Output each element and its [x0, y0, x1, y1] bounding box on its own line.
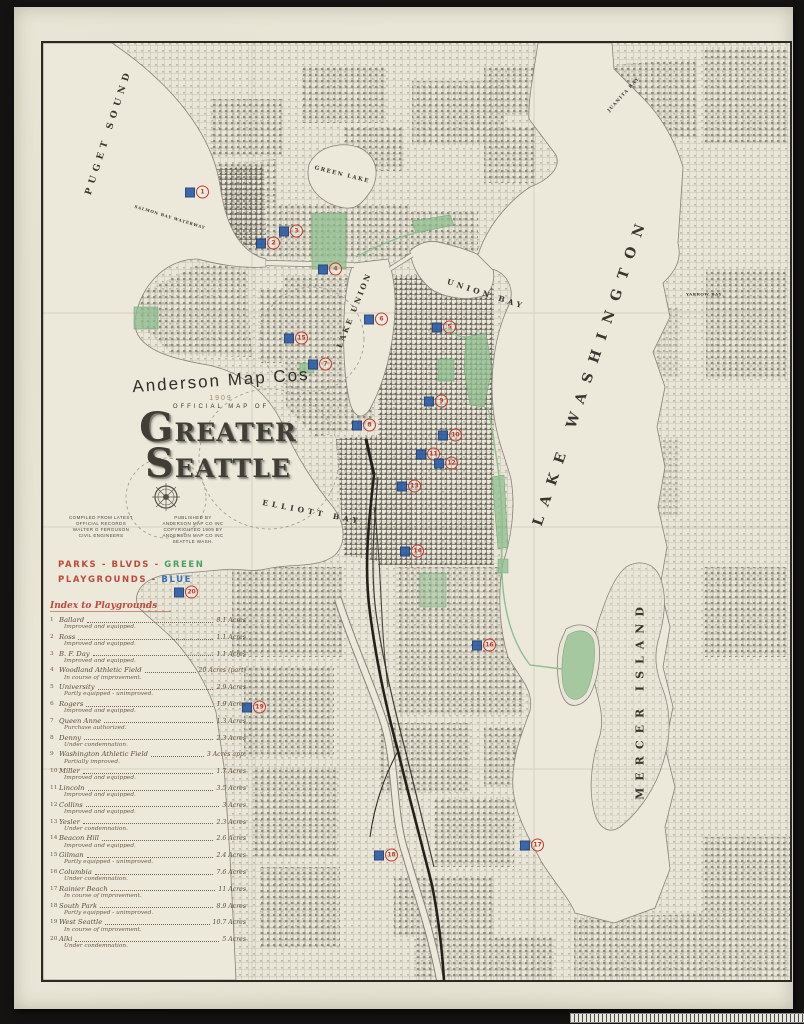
index-item: 14Beacon Hill2.6 AcresImproved and equip…: [50, 835, 246, 849]
credit-line: CIVIL ENGINEERS: [62, 533, 140, 539]
water-label: MERCER ISLAND: [634, 600, 647, 800]
index-item-name: B. F. Day: [59, 651, 90, 658]
playground-square-icon: [520, 840, 530, 850]
index-item-status: In course of improvement.: [64, 675, 246, 682]
playground-square-icon: [400, 546, 410, 556]
dotted-leader: [88, 789, 214, 791]
playground-number-badge: 16: [483, 639, 496, 652]
index-item-acres: 3 Acres: [222, 802, 246, 809]
index-item-status: In course of improvement.: [64, 927, 246, 934]
index-item-status: Improved and equipped.: [64, 708, 246, 715]
scanned-map-photo: PUGET SOUNDGREEN LAKELAKE UNIONUNION BAY…: [0, 0, 804, 1024]
index-item-name: West Seattle: [59, 919, 102, 926]
index-item: 8Denny2.3 AcresUnder condemnation.: [50, 735, 246, 749]
playground-square-icon: [374, 850, 384, 860]
playground-square-icon: [318, 264, 328, 274]
index-item-number: 10: [50, 768, 59, 775]
index-item: 5University2.9 AcresPartly equipped - un…: [50, 684, 246, 698]
index-item-number: 11: [50, 785, 59, 792]
playground-square-icon: [364, 314, 374, 324]
index-item-acres: 1.3 Acres: [216, 718, 246, 725]
playground-number-badge: 15: [295, 332, 308, 345]
index-item-name: Columbia: [59, 869, 92, 876]
compass-rose: [152, 483, 180, 511]
index-item-status: Partly equipped - unimproved.: [64, 691, 246, 698]
dotted-leader: [105, 923, 209, 925]
index-item-number: 18: [50, 903, 59, 910]
index-item-acres: 10.7 Acres: [213, 919, 246, 926]
playground-marker: 10: [438, 429, 462, 442]
index-item: 13Yesler2.3 AcresUnder condemnation.: [50, 819, 246, 833]
playground-square-icon: [185, 187, 195, 197]
index-item-acres: 3.5 Acres: [216, 785, 246, 792]
playground-square-icon: [424, 396, 434, 406]
playground-marker: 18: [374, 849, 398, 862]
index-item-acres: 1.1 Acres: [216, 651, 246, 658]
playground-number-badge: 4: [329, 263, 342, 276]
index-item: 7Queen Anne1.3 AcresPurchase authorized.: [50, 718, 246, 732]
index-item-number: 16: [50, 869, 59, 876]
playground-marker: 15: [284, 332, 308, 345]
index-item-number: 5: [50, 684, 59, 691]
legend-parks-label: PARKS - BLVDS -: [58, 560, 160, 570]
dotted-leader: [86, 805, 220, 807]
title-initial-s: S: [145, 440, 175, 487]
playground-marker: 6: [364, 313, 388, 326]
playground-marker: 13: [397, 480, 421, 493]
index-item-number: 14: [50, 835, 59, 842]
index-item-acres: 2.3 Acres: [216, 819, 246, 826]
playground-square-icon: [279, 226, 289, 236]
playground-square-icon: [438, 430, 448, 440]
index-item-number: 12: [50, 802, 59, 809]
index-item-status: Improved and equipped.: [64, 809, 246, 816]
playground-square-icon: [256, 238, 266, 248]
index-item-name: University: [59, 684, 95, 691]
dotted-leader: [151, 755, 204, 757]
playground-number-badge: 19: [253, 701, 266, 714]
playground-number-badge: 14: [411, 545, 424, 558]
playground-number-badge: 17: [531, 839, 544, 852]
index-item-number: 7: [50, 718, 59, 725]
playground-number-badge: 6: [375, 313, 388, 326]
dotted-leader: [86, 705, 213, 707]
map-paper-sheet: PUGET SOUNDGREEN LAKELAKE UNIONUNION BAY…: [14, 7, 793, 1009]
playground-square-icon: [416, 449, 426, 459]
index-item-acres: 2.3 Acres: [216, 735, 246, 742]
index-item-number: 4: [50, 667, 59, 674]
legend-blue-value: BLUE: [161, 575, 192, 585]
index-item-name: Washington Athletic Field: [59, 751, 148, 758]
index-item-number: 1: [50, 617, 59, 624]
dotted-leader: [98, 688, 214, 690]
index-item-name: Queen Anne: [59, 718, 101, 725]
index-item: 12Collins3 AcresImproved and equipped.: [50, 802, 246, 816]
index-item-name: Woodland Athletic Field: [59, 667, 142, 674]
index-item: 19West Seattle10.7 AcresIn course of imp…: [50, 919, 246, 933]
index-item-name: Alki: [59, 936, 72, 943]
index-item-status: Partially improved.: [64, 759, 246, 766]
index-item: 6Rogers1.9 AcresImproved and equipped.: [50, 701, 246, 715]
index-item-status: In course of improvement.: [64, 893, 246, 900]
index-item: 18South Park8.9 AcresPartly equipped - u…: [50, 903, 246, 917]
playground-square-icon: [397, 481, 407, 491]
legend-playgrounds-line: PLAYGROUNDS - BLUE: [58, 573, 205, 588]
playground-number-badge: 18: [385, 849, 398, 862]
scale-ruler-strip: [570, 1013, 804, 1023]
dotted-leader: [111, 889, 216, 891]
title-reater: REATER: [174, 418, 296, 447]
index-item-number: 2: [50, 634, 59, 641]
index-item-acres: 1.7 Acres: [216, 768, 246, 775]
index-item-acres: 7.6 Acres: [216, 869, 246, 876]
index-item-name: Beacon Hill: [59, 835, 99, 842]
index-item-name: Yesler: [59, 819, 80, 826]
index-item: 4Woodland Athletic Field20 Acres (part)I…: [50, 667, 246, 681]
index-item-acres: 2.9 Acres: [216, 684, 246, 691]
credits-compiler: COMPILED FROM LATESTOFFICIAL RECORDSWALT…: [62, 515, 140, 545]
playground-index: Index to Playgrounds 1Ballard8.1 AcresIm…: [50, 593, 246, 953]
index-item-acres: 1.1 Acres: [216, 634, 246, 641]
legend-green-value: GREEN: [164, 560, 204, 570]
credits-publisher: PUBLISHED BYANDERSON MAP CO INCCOPYRIGHT…: [154, 515, 232, 545]
index-item-name: Rainier Beach: [59, 886, 108, 893]
index-item: 1Ballard8.1 AcresImproved and equipped.: [50, 617, 246, 631]
index-item-acres: 8.9 Acres: [216, 903, 246, 910]
index-item-acres: 2.6 Acres: [216, 835, 246, 842]
color-legend: PARKS - BLVDS - GREEN PLAYGROUNDS - BLUE: [58, 558, 205, 588]
index-item-number: 17: [50, 886, 59, 893]
index-item: 15Gilman2.4 AcresPartly equipped - unimp…: [50, 852, 246, 866]
index-list: 1Ballard8.1 AcresImproved and equipped.2…: [50, 617, 246, 950]
index-item-status: Improved and equipped.: [64, 843, 246, 850]
index-item-status: Purchase authorized.: [64, 725, 246, 732]
index-item-status: Under condemnation.: [64, 876, 246, 883]
dotted-leader: [87, 856, 214, 858]
playground-square-icon: [284, 333, 294, 343]
playground-number-badge: 8: [363, 419, 376, 432]
index-heading: Index to Playgrounds: [50, 601, 171, 612]
playground-square-icon: [472, 640, 482, 650]
map-year: 1909: [106, 395, 336, 402]
index-item-status: Improved and equipped.: [64, 775, 246, 782]
dotted-leader: [75, 940, 219, 942]
playground-marker: 14: [400, 545, 424, 558]
playground-marker: 8: [352, 419, 376, 432]
map-title: GREATER SEATTLE: [84, 411, 352, 483]
index-item: 10Miller1.7 AcresImproved and equipped.: [50, 768, 246, 782]
dotted-leader: [78, 638, 213, 640]
legend-playgrounds-label: PLAYGROUNDS -: [58, 575, 157, 585]
index-item: 20Alki5 AcresUnder condemnation.: [50, 936, 246, 950]
index-item-number: 9: [50, 751, 59, 758]
index-item-number: 15: [50, 852, 59, 859]
legend-parks-line: PARKS - BLVDS - GREEN: [58, 558, 205, 573]
index-item-name: Gilman: [59, 852, 84, 859]
playground-square-icon: [434, 458, 444, 468]
index-item: 2Ross1.1 AcresImproved and equipped.: [50, 634, 246, 648]
index-item-number: 19: [50, 919, 59, 926]
playground-marker: 3: [279, 225, 303, 238]
playground-marker: 5: [432, 321, 456, 334]
index-item: 3B. F. Day1.1 AcresImproved and equipped…: [50, 651, 246, 665]
dotted-leader: [145, 671, 196, 673]
index-item-number: 6: [50, 701, 59, 708]
playground-marker: 9: [424, 395, 448, 408]
title-eattle: EATTLE: [175, 454, 291, 483]
index-item-acres: 5 Acres: [222, 936, 246, 943]
index-item-status: Under condemnation.: [64, 943, 246, 950]
index-item: 9Washington Athletic Field3 Acres app.Pa…: [50, 751, 246, 765]
playground-square-icon: [432, 322, 442, 332]
dotted-leader: [102, 839, 213, 841]
index-item-number: 13: [50, 819, 59, 826]
dotted-leader: [100, 906, 213, 908]
index-item-acres: 3 Acres app.: [207, 751, 246, 758]
index-item-name: Denny: [59, 735, 81, 742]
index-item: 17Rainier Beach11 AcresIn course of impr…: [50, 886, 246, 900]
playground-marker: 2: [256, 237, 280, 250]
index-item-status: Improved and equipped.: [64, 792, 246, 799]
dotted-leader: [83, 772, 214, 774]
index-item-name: Ross: [59, 634, 75, 641]
credits-block: COMPILED FROM LATESTOFFICIAL RECORDSWALT…: [62, 515, 232, 545]
playground-number-badge: 12: [445, 457, 458, 470]
dotted-leader: [84, 738, 213, 740]
playground-marker: 1: [185, 186, 209, 199]
playground-number-badge: 13: [408, 480, 421, 493]
dotted-leader: [83, 822, 214, 824]
playground-number-badge: 10: [449, 429, 462, 442]
index-item-status: Under condemnation.: [64, 826, 246, 833]
index-item-status: Improved and equipped.: [64, 624, 246, 631]
credit-line: SEATTLE WASH.: [154, 539, 232, 545]
playground-number-badge: 5: [443, 321, 456, 334]
index-item-acres: 8.1 Acres: [216, 617, 246, 624]
dotted-leader: [87, 621, 213, 623]
index-item-status: Partly equipped - unimproved.: [64, 859, 246, 866]
index-item-status: Under condemnation.: [64, 742, 246, 749]
index-item-name: Collins: [59, 802, 83, 809]
index-item-number: 8: [50, 735, 59, 742]
playground-marker: 12: [434, 457, 458, 470]
index-item-acres: 11 Acres: [218, 886, 246, 893]
index-item-status: Improved and equipped.: [64, 658, 246, 665]
dotted-leader: [93, 654, 214, 656]
index-item-acres: 20 Acres (part): [199, 667, 246, 674]
index-item-number: 20: [50, 936, 59, 943]
index-item-acres: 2.4 Acres: [216, 852, 246, 859]
playground-number-badge: 1: [196, 186, 209, 199]
playground-marker: 17: [520, 839, 544, 852]
index-item-status: Improved and equipped.: [64, 641, 246, 648]
playground-square-icon: [352, 420, 362, 430]
index-item-name: South Park: [59, 903, 97, 910]
playground-marker: 16: [472, 639, 496, 652]
index-item-name: Rogers: [59, 701, 83, 708]
index-item-number: 3: [50, 651, 59, 658]
index-item: 11Lincoln3.5 AcresImproved and equipped.: [50, 785, 246, 799]
playground-number-badge: 2: [267, 237, 280, 250]
water-label: YARROW BAY: [686, 292, 722, 297]
index-item: 16Columbia7.6 AcresUnder condemnation.: [50, 869, 246, 883]
playground-number-badge: 9: [435, 395, 448, 408]
playground-marker: 4: [318, 263, 342, 276]
index-item-acres: 1.9 Acres: [216, 701, 246, 708]
index-item-status: Partly equipped - unimproved.: [64, 910, 246, 917]
index-item-name: Ballard: [59, 617, 84, 624]
playground-number-badge: 3: [290, 225, 303, 238]
dotted-leader: [95, 873, 214, 875]
index-item-name: Miller: [59, 768, 80, 775]
dotted-leader: [104, 721, 213, 723]
index-item-name: Lincoln: [59, 785, 85, 792]
